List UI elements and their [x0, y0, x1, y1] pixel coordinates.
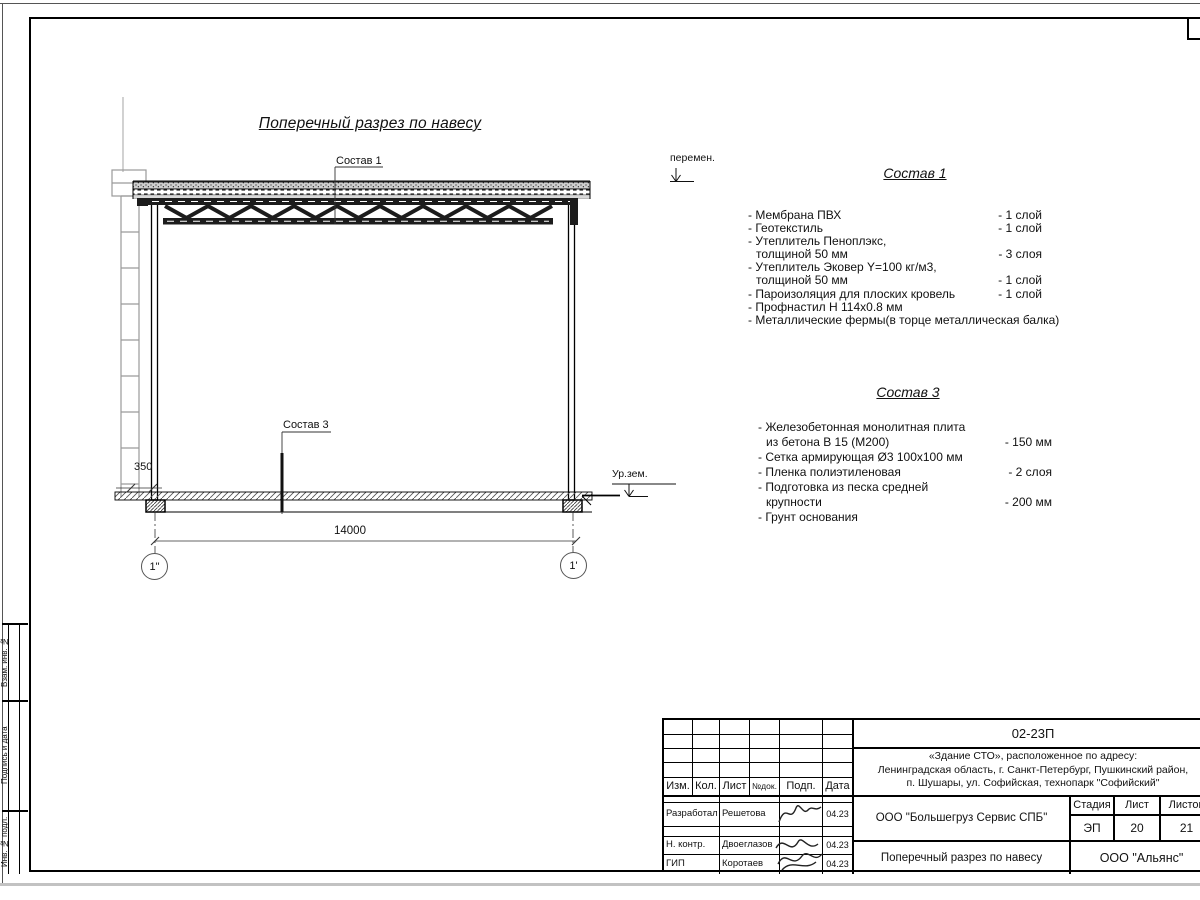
spec-item-text: - Грунт основания — [758, 510, 858, 524]
col-header-ndok: №док. — [750, 777, 779, 795]
spec-item-text: - Железобетонная монолитная плита — [758, 420, 965, 434]
spec-row: из бетона В 15 (М200)- 150 мм — [758, 435, 1060, 450]
spec-item-text: - Геотекстиль — [748, 221, 823, 235]
spec-row: - Металлические фермы(в торце металличес… — [748, 314, 1080, 327]
spec-item-value: - 1 слой — [998, 222, 1042, 235]
address-line: Ленинградская область, г. Санкт-Петербур… — [854, 764, 1200, 778]
signer-date: 04.23 — [823, 836, 852, 854]
column-left — [152, 203, 158, 500]
sheet-title: Поперечный разрез по навесу — [854, 842, 1069, 874]
col-header-podp: Подп. — [780, 777, 822, 795]
truss — [137, 198, 578, 225]
column-right — [569, 203, 575, 500]
axis-marker-left: 1" — [141, 553, 168, 580]
spec-row: - Железобетонная монолитная плита — [758, 420, 1060, 435]
sheets-value: 21 — [1161, 816, 1200, 840]
sheet-value: 20 — [1115, 816, 1159, 840]
col-header-list: Лист — [720, 777, 749, 795]
spec-item-text: - Металлические фермы(в торце металличес… — [748, 313, 1059, 327]
title-block: Изм. Кол. Лист №док. Подп. Дата Разработ… — [662, 718, 1200, 872]
truss-diagonals — [165, 206, 552, 218]
doc-number: 02-23П — [854, 720, 1200, 747]
drawing-sheet: { "sheet": { "title": "Поперечный разрез… — [0, 0, 1200, 900]
spec-item-text: - Пленка полиэтиленовая — [758, 465, 901, 479]
spec-item-text: - Профнастил Н 114х0.8 мм — [748, 300, 903, 314]
spec-row: - Пленка полиэтиленовая- 2 слоя — [758, 465, 1060, 480]
level-mark-urzem — [612, 484, 676, 497]
roof-layers — [133, 181, 590, 199]
col-header-izm: Изм. — [664, 777, 692, 795]
leader-sostav3 — [282, 432, 331, 514]
signer-role: ГИП — [666, 854, 718, 874]
spec-item-value: - 2 слоя — [1008, 465, 1052, 480]
spec-item-text: крупности — [766, 495, 822, 509]
signer-role: Разработал — [666, 802, 718, 826]
columns — [152, 203, 575, 500]
spec-item-text: - Подготовка из песка средней — [758, 480, 928, 494]
signer-date: 04.23 — [823, 802, 852, 826]
signer-name: Двоеглазов — [722, 836, 778, 854]
spec-item-value: - 1 слой — [998, 274, 1042, 287]
spec3-heading: Состав 3 — [808, 384, 1008, 400]
spec-item-value: - 1 слой — [998, 288, 1042, 301]
col-header-data: Дата — [823, 777, 852, 795]
signer-name: Коротаев — [722, 854, 778, 874]
stage-value: ЭП — [1071, 816, 1113, 840]
spec-item-text: - Утеплитель Эковер Y=100 кг/м3, — [748, 260, 937, 274]
ground-slab — [115, 492, 620, 512]
axis-marker-right: 1' — [560, 552, 587, 579]
signer-name: Решетова — [722, 802, 778, 826]
truss-right-post — [570, 198, 578, 225]
drawing-title: Поперечный разрез по навесу — [255, 115, 485, 132]
spec-row: - Грунт основания — [758, 510, 1060, 525]
sheets-label: Листов — [1161, 797, 1200, 814]
spec-item-text: - Мембрана ПВХ — [748, 208, 841, 222]
company-name: ООО "Большегруз Сервис СПБ" — [854, 797, 1069, 840]
spec3-list: - Железобетонная монолитная плита из бет… — [758, 420, 1060, 525]
spec-row: - Подготовка из песка средней — [758, 480, 1060, 495]
sostav3-leader-label: Состав 3 — [283, 419, 329, 431]
spec-item-text: толщиной 50 мм — [756, 273, 848, 287]
adjacent-wall — [112, 97, 146, 497]
sheet-label: Лист — [1115, 797, 1159, 814]
signer-role: Н. контр. — [666, 836, 718, 854]
foundation-right — [563, 500, 582, 512]
signer-date: 04.23 — [823, 854, 852, 874]
spec-row: - Сетка армирующая Ø3 100х100 мм — [758, 450, 1060, 465]
address-line: «Здание СТО», расположенное по адресу: — [854, 750, 1200, 764]
dim-350-label: 350 — [134, 461, 152, 473]
spec-item-value: - 200 мм — [1005, 495, 1052, 510]
org-name: ООО "Альянс" — [1071, 842, 1200, 874]
spec-row: крупности- 200 мм — [758, 495, 1060, 510]
signature-razrabotal — [776, 796, 824, 828]
dim-14000-label: 14000 — [300, 525, 400, 538]
spec-item-text: - Сетка армирующая Ø3 100х100 мм — [758, 450, 963, 464]
signature-gip — [772, 832, 826, 874]
spec1-heading: Состав 1 — [815, 165, 1015, 181]
truss-left-bracket — [137, 198, 148, 206]
ur-zem-label: Ур.зем. — [612, 469, 648, 481]
spec-item-text: толщиной 50 мм — [756, 247, 848, 261]
foundation-left — [146, 500, 165, 512]
col-header-kol: Кол. — [693, 777, 719, 795]
stage-label: Стадия — [1071, 797, 1113, 814]
spec-item-text: из бетона В 15 (М200) — [766, 435, 889, 449]
project-address: «Здание СТО», расположенное по адресу: Л… — [854, 750, 1200, 794]
spec-item-text: - Пароизоляция для плоских кровель — [748, 287, 955, 301]
spec1-list: - Мембрана ПВХ- 1 слой - Геотекстиль- 1 … — [748, 209, 1080, 327]
spec-item-text: - Утеплитель Пеноплэкс, — [748, 234, 886, 248]
spec-item-value: - 3 слоя — [998, 248, 1042, 261]
sostav1-leader-label: Состав 1 — [336, 155, 382, 167]
address-line: п. Шушары, ул. Софийская, технопарк "Соф… — [854, 777, 1200, 791]
level-mark-peremen — [670, 168, 694, 182]
peremen-label: перемен. — [670, 153, 715, 165]
spec-item-value: - 150 мм — [1005, 435, 1052, 450]
